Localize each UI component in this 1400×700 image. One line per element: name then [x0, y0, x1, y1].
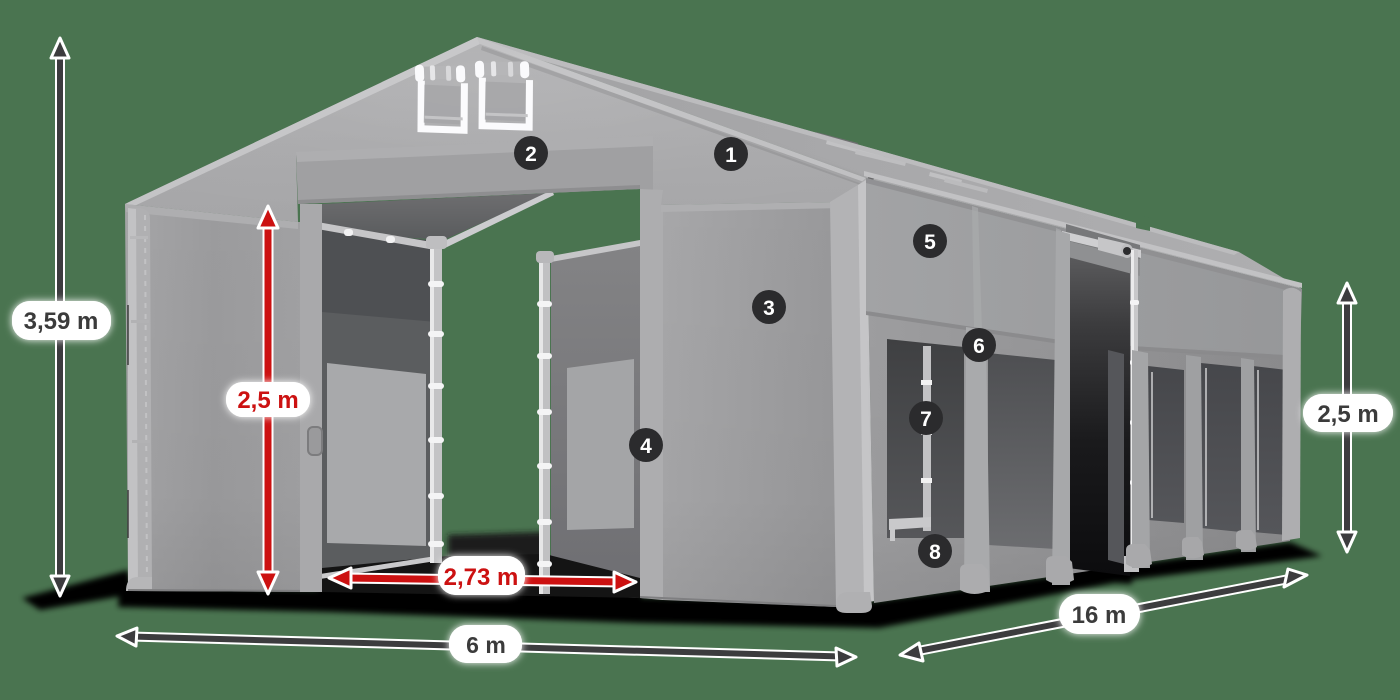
- svg-text:2,5 m: 2,5 m: [1317, 401, 1378, 428]
- svg-text:5: 5: [924, 231, 936, 254]
- svg-text:4: 4: [640, 435, 652, 458]
- svg-text:3: 3: [763, 297, 775, 320]
- svg-text:2,73 m: 2,73 m: [444, 564, 519, 591]
- svg-text:16 m: 16 m: [1072, 602, 1127, 629]
- svg-text:3,59 m: 3,59 m: [24, 308, 99, 335]
- svg-text:7: 7: [920, 408, 932, 431]
- svg-text:2,5 m: 2,5 m: [237, 387, 298, 414]
- svg-text:6 m: 6 m: [466, 632, 506, 658]
- svg-text:8: 8: [929, 541, 941, 564]
- svg-text:6: 6: [973, 335, 985, 358]
- svg-text:1: 1: [725, 144, 737, 167]
- svg-text:2: 2: [525, 143, 537, 166]
